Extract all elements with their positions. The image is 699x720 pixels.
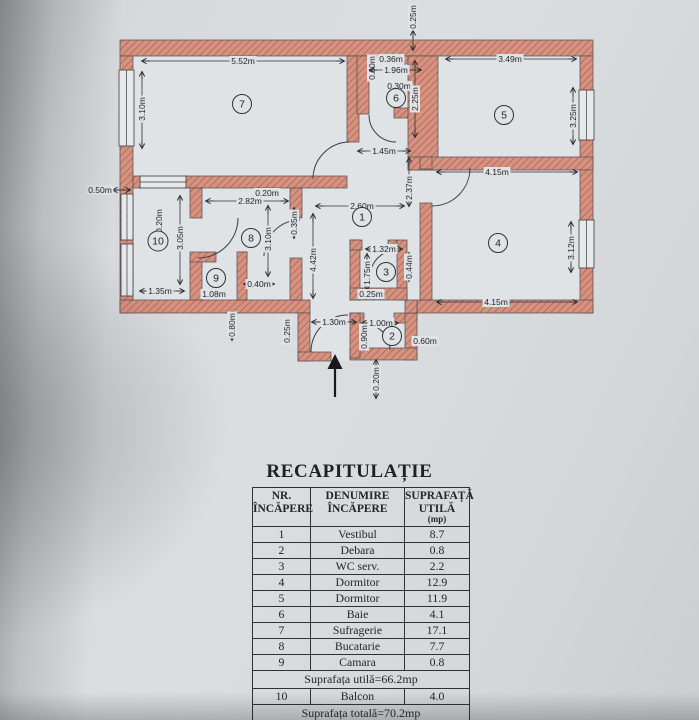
- table-row: 10Balcon4.0: [253, 688, 470, 704]
- dimension-text: 0.80m: [227, 313, 237, 337]
- cell-room-number: 8: [253, 638, 311, 654]
- cell-room-number: 1: [253, 526, 311, 542]
- total-row-text: Suprafața totală=70.2mp: [253, 704, 470, 720]
- table-row: 9Camara0.8: [253, 654, 470, 670]
- header-line: (mp): [405, 514, 469, 524]
- header-line: SUPRAFAȚĂ: [405, 490, 474, 502]
- dimension-text: 0.25m: [408, 5, 418, 29]
- cell-room-name: Dormitor: [311, 574, 405, 590]
- cell-room-number: 6: [253, 606, 311, 622]
- dimension-text: 0.20m: [371, 367, 381, 391]
- dimension-text: 0.60m: [413, 336, 437, 346]
- cell-room-area: 2.2: [405, 558, 470, 574]
- cell-room-number: 3: [253, 558, 311, 574]
- cell-room-area: 4.0: [405, 688, 470, 704]
- room-marker: 3: [377, 263, 396, 282]
- dimension-label: 3.49m: [497, 54, 524, 64]
- dimension-text: 0.25m: [359, 289, 383, 299]
- cell-room-area: 17.1: [405, 622, 470, 638]
- cell-room-area: 12.9: [405, 574, 470, 590]
- col-header-nr: NR. ÎNCĂPERE: [253, 488, 311, 527]
- dimension-text: 0.20m: [154, 209, 164, 233]
- cell-room-name: Balcon: [311, 688, 405, 704]
- cell-room-area: 0.8: [405, 654, 470, 670]
- dimension-label: 4.42m: [308, 247, 318, 274]
- room-marker: 2: [383, 327, 402, 346]
- dimension-label: 0.25m: [408, 4, 418, 31]
- cell-room-name: Sufragerie: [311, 622, 405, 638]
- recap-table: NR. ÎNCĂPERE DENUMIRE ÎNCĂPERE SUPRAFAȚĂ…: [252, 487, 470, 720]
- table-row: 1Vestibul8.7: [253, 526, 470, 542]
- dimension-label: 0.60m: [367, 55, 377, 82]
- table-row: 5Dormitor11.9: [253, 590, 470, 606]
- dimension-label: 0.40m: [246, 279, 273, 289]
- room-marker: 8: [242, 229, 261, 248]
- dimension-text: 1.35m: [148, 286, 172, 296]
- dimension-text: 3.05m: [175, 226, 185, 250]
- room-marker: 4: [489, 234, 508, 253]
- dimension-text: 4.42m: [308, 248, 318, 272]
- total-row: Suprafața totală=70.2mp: [253, 704, 470, 720]
- cell-room-name: Bucatarie: [311, 638, 405, 654]
- dimension-text: 4.15m: [485, 167, 509, 177]
- room-marker: 9: [207, 269, 226, 288]
- dimension-text: 1.45m: [372, 146, 396, 156]
- dimension-label: 0.80m: [227, 312, 237, 339]
- balcony-door-window: [140, 176, 186, 188]
- dimension-label: 1.96m: [383, 65, 410, 75]
- room-marker: 7: [233, 95, 252, 114]
- dimension-label: 2.82m: [237, 196, 264, 206]
- cell-room-name: Vestibul: [311, 526, 405, 542]
- cell-room-name: Dormitor: [311, 590, 405, 606]
- col-header-denumire: DENUMIRE ÎNCĂPERE: [311, 488, 405, 527]
- dimension-label: 3.10m: [137, 96, 147, 123]
- dimension-label: 0.20m: [154, 208, 164, 235]
- dimension-label: 0.44m: [404, 254, 414, 281]
- dimension-label: 0.90m: [359, 324, 369, 351]
- subtotal-row: Suprafața utilă=66.2mp: [253, 670, 470, 688]
- dimension-label: 3.25m: [568, 103, 578, 130]
- window: [121, 244, 133, 296]
- window: [119, 70, 134, 146]
- floor-plan: 0.25m5.52m3.10m0.50m0.60m0.36m1.96m0.30m…: [0, 0, 699, 455]
- header-line: ÎNCĂPERE: [253, 503, 313, 515]
- dimension-text: 0.50m: [88, 185, 112, 195]
- room-marker: 6: [387, 89, 406, 108]
- table-row: 3WC serv.2.2: [253, 558, 470, 574]
- dimension-label: 2.37m: [404, 175, 414, 202]
- room-marker: 10: [148, 231, 168, 251]
- dimension-label: 1.32m: [371, 244, 398, 254]
- cell-room-area: 4.1: [405, 606, 470, 622]
- table-row: 6Baie4.1: [253, 606, 470, 622]
- dimension-label: 0.50m: [87, 185, 114, 195]
- dimension-text: 3.12m: [566, 236, 576, 260]
- table-row: 7Sufragerie17.1: [253, 622, 470, 638]
- window: [579, 90, 594, 140]
- room-number: 1: [359, 212, 365, 224]
- room-number: 6: [393, 93, 399, 105]
- dimension-label: 5.52m: [230, 56, 257, 66]
- dimension-text: 1.30m: [322, 317, 346, 327]
- room-number: 4: [495, 238, 501, 250]
- table-row: 4Dormitor12.9: [253, 574, 470, 590]
- header-line: ÎNCĂPERE: [327, 503, 387, 515]
- col-header-suprafata: SUPRAFAȚĂ UTILĂ (mp): [405, 488, 470, 527]
- dimension-text: 1.96m: [384, 65, 408, 75]
- cell-room-area: 11.9: [405, 590, 470, 606]
- dimension-text: 3.10m: [137, 97, 147, 121]
- dimension-text: 0.40m: [247, 279, 271, 289]
- dimension-text: 1.08m: [202, 289, 226, 299]
- header-line: DENUMIRE: [326, 490, 390, 502]
- window: [579, 220, 594, 268]
- recap-title: RECAPITULAȚIE: [0, 461, 699, 483]
- room-number: 9: [213, 273, 219, 285]
- cell-room-name: Camara: [311, 654, 405, 670]
- cell-room-area: 0.8: [405, 542, 470, 558]
- dimension-text: 3.10m: [263, 227, 273, 251]
- dimension-text: 0.60m: [367, 56, 377, 80]
- dimension-text: 0.44m: [404, 255, 414, 279]
- table-row: 2Debara0.8: [253, 542, 470, 558]
- dimension-text: 1.75m: [362, 261, 372, 285]
- dimension-text: 0.90m: [359, 325, 369, 349]
- cell-room-number: 4: [253, 574, 311, 590]
- recapitulation-section: RECAPITULAȚIE NR. ÎNCĂPERE DENUMIRE ÎNCĂ…: [0, 461, 699, 720]
- cell-room-name: WC serv.: [311, 558, 405, 574]
- cell-room-number: 10: [253, 688, 311, 704]
- room-number: 5: [501, 110, 507, 122]
- dimension-label: 0.36m: [378, 54, 405, 64]
- dimension-label: 0.20m: [371, 366, 381, 393]
- cell-room-name: Baie: [311, 606, 405, 622]
- dimension-text: 0.36m: [379, 54, 403, 64]
- room-number: 10: [152, 236, 164, 248]
- cell-room-name: Debara: [311, 542, 405, 558]
- dimension-label: 3.12m: [566, 235, 576, 262]
- cell-room-number: 5: [253, 590, 311, 606]
- cell-room-area: 7.7: [405, 638, 470, 654]
- cell-room-area: 8.7: [405, 526, 470, 542]
- dimension-label: 0.35m: [289, 210, 299, 237]
- header-line: NR.: [272, 490, 292, 502]
- dimension-label: 1.30m: [321, 317, 348, 327]
- dimension-label: 0.25m: [358, 289, 385, 299]
- dimension-text: 0.35m: [289, 211, 299, 235]
- window: [121, 194, 133, 240]
- dimension-label: 1.08m: [201, 289, 228, 299]
- cell-room-number: 9: [253, 654, 311, 670]
- dimension-text: 4.15m: [484, 297, 508, 307]
- cell-room-number: 2: [253, 542, 311, 558]
- room-number: 3: [383, 267, 389, 279]
- room-number: 7: [239, 99, 245, 111]
- dimension-label: 4.15m: [484, 167, 511, 177]
- room-number: 8: [248, 233, 254, 245]
- room-number: 2: [389, 331, 395, 343]
- dimension-label: 3.05m: [175, 225, 185, 252]
- room-marker: 5: [495, 106, 514, 125]
- dimension-label: 1.35m: [147, 286, 174, 296]
- room-marker: 1: [353, 208, 372, 227]
- dimension-text: 5.52m: [231, 56, 255, 66]
- dimension-text: 2.82m: [238, 196, 262, 206]
- dimension-label: 2.25m: [410, 86, 420, 113]
- dimension-text: 0.25m: [282, 319, 292, 343]
- dimension-label: 1.75m: [362, 260, 372, 287]
- dimension-text: 3.49m: [498, 54, 522, 64]
- floor-plan-photo: 0.25m5.52m3.10m0.50m0.60m0.36m1.96m0.30m…: [0, 0, 699, 720]
- table-row: 8Bucatarie7.7: [253, 638, 470, 654]
- dimension-text: 3.25m: [568, 104, 578, 128]
- dimension-label: 4.15m: [483, 297, 510, 307]
- dimension-label: 3.10m: [263, 226, 273, 253]
- dimension-label: 0.60m: [412, 336, 439, 346]
- subtotal-row-text: Suprafața utilă=66.2mp: [253, 670, 470, 688]
- dimension-text: 2.25m: [410, 87, 420, 111]
- dimension-text: 2.37m: [404, 176, 414, 200]
- dimension-label: 1.45m: [371, 146, 398, 156]
- dimension-text: 1.32m: [372, 244, 396, 254]
- cell-room-number: 7: [253, 622, 311, 638]
- header-row: NR. ÎNCĂPERE DENUMIRE ÎNCĂPERE SUPRAFAȚĂ…: [253, 488, 470, 527]
- dimension-label: 0.25m: [282, 318, 292, 345]
